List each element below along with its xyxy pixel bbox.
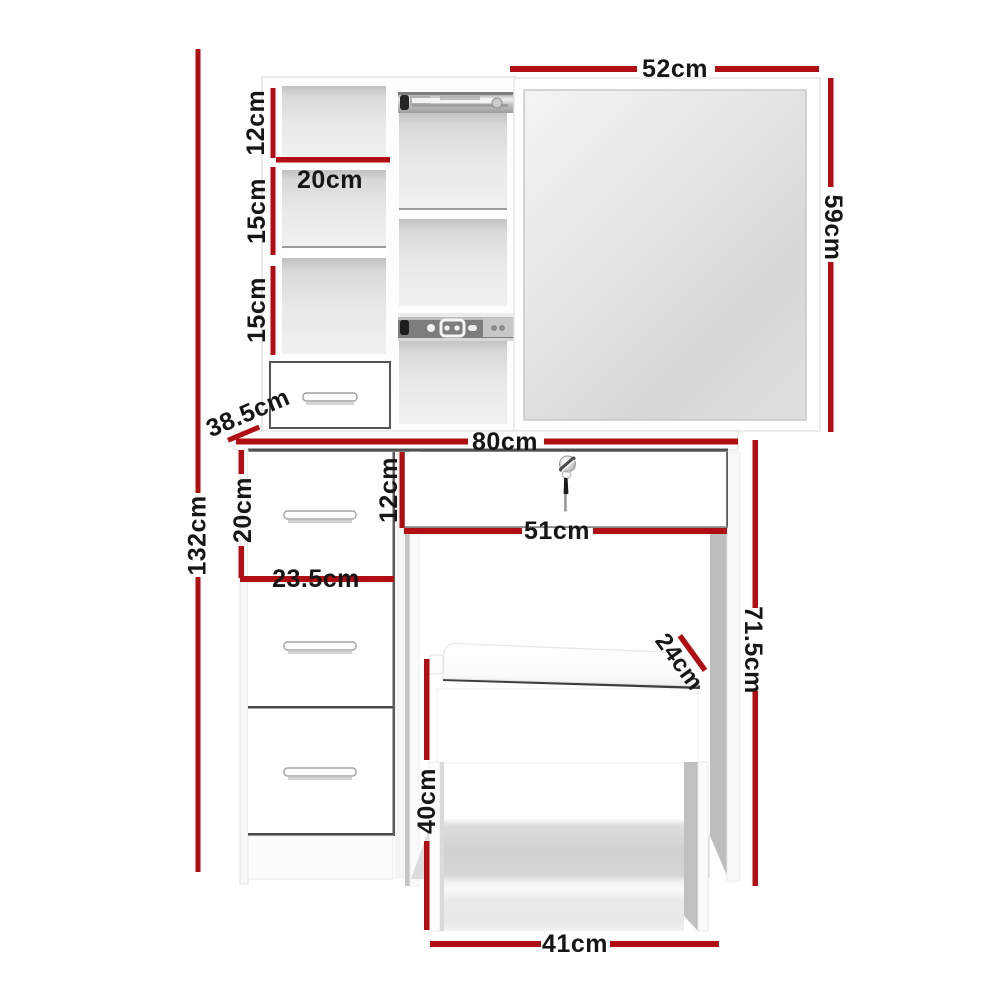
svg-text:80cm: 80cm — [472, 428, 538, 456]
svg-text:12cm: 12cm — [242, 90, 270, 156]
svg-text:20cm: 20cm — [297, 166, 363, 194]
svg-text:23.5cm: 23.5cm — [272, 565, 360, 593]
svg-text:132cm: 132cm — [184, 495, 212, 575]
svg-text:15cm: 15cm — [243, 178, 271, 244]
svg-text:41cm: 41cm — [542, 930, 608, 958]
svg-text:20cm: 20cm — [229, 477, 257, 543]
svg-text:71.5cm: 71.5cm — [739, 606, 767, 694]
svg-text:51cm: 51cm — [524, 517, 590, 545]
svg-text:15cm: 15cm — [243, 277, 271, 343]
svg-text:52cm: 52cm — [642, 55, 708, 83]
svg-text:40cm: 40cm — [413, 768, 441, 834]
svg-text:59cm: 59cm — [819, 195, 847, 261]
svg-text:12cm: 12cm — [375, 457, 403, 523]
